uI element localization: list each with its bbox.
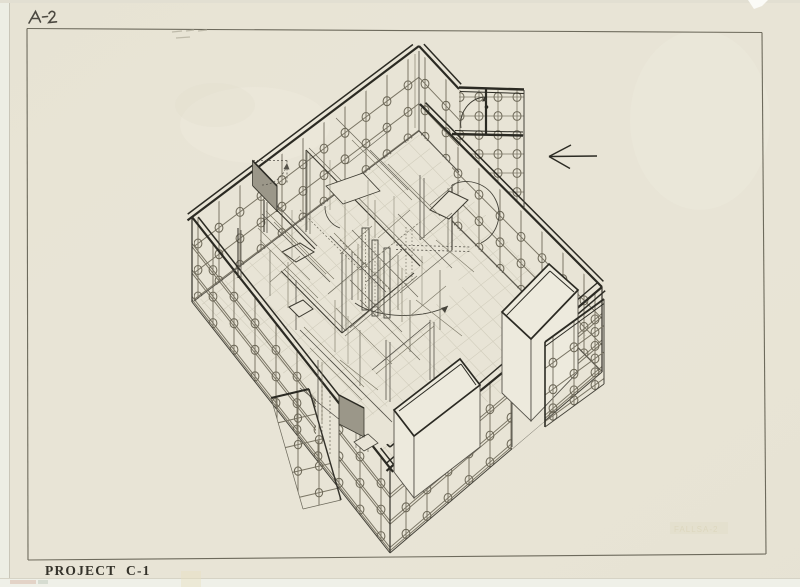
svg-text:PROJECT: PROJECT bbox=[45, 563, 116, 578]
svg-text:FALLSA-2: FALLSA-2 bbox=[674, 525, 718, 534]
svg-text:C-1: C-1 bbox=[126, 563, 151, 578]
